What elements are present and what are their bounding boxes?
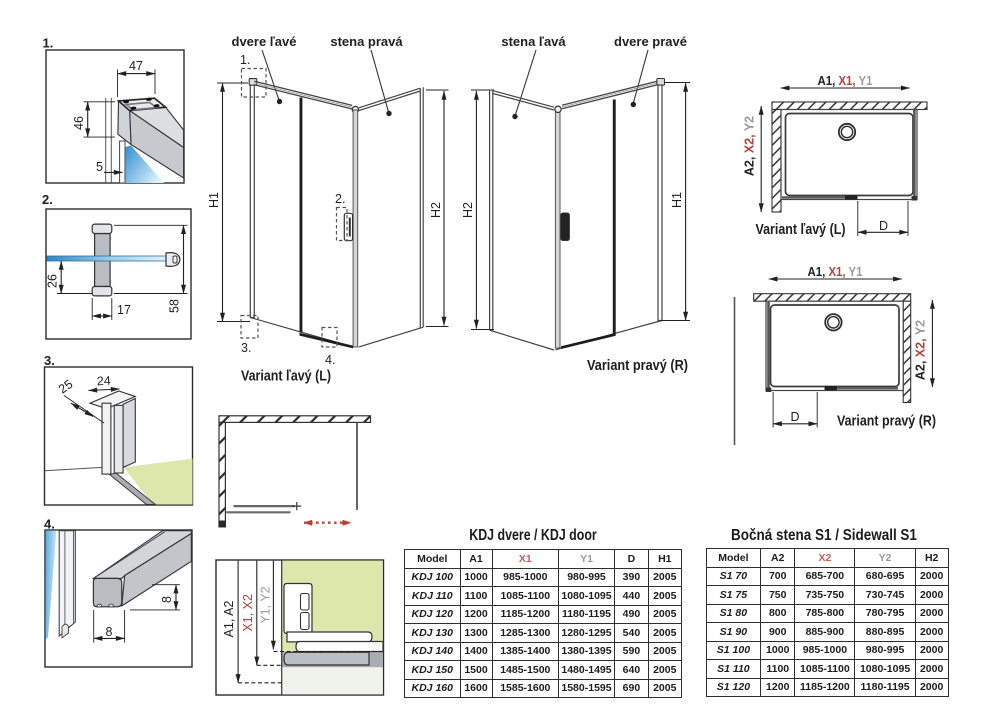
svg-text:Y1, Y2: Y1, Y2 xyxy=(258,586,272,623)
svg-text:dvere ľavé: dvere ľavé xyxy=(232,34,297,49)
svg-text:26: 26 xyxy=(46,274,60,288)
svg-text:Variant pravý (R): Variant pravý (R) xyxy=(587,357,688,374)
svg-text:X1, X2: X1, X2 xyxy=(241,594,255,632)
svg-text:H2: H2 xyxy=(461,202,475,218)
svg-text:A1, X1, Y1: A1, X1, Y1 xyxy=(818,74,873,88)
svg-text:47: 47 xyxy=(129,59,143,73)
svg-text:A1, X1, Y1: A1, X1, Y1 xyxy=(808,265,863,279)
svg-text:4.: 4. xyxy=(325,353,335,367)
svg-text:D: D xyxy=(790,410,799,424)
svg-text:17: 17 xyxy=(117,303,131,317)
svg-text:D: D xyxy=(879,219,888,233)
svg-text:dvere pravé: dvere pravé xyxy=(614,34,687,49)
svg-text:58: 58 xyxy=(168,299,182,313)
svg-text:stena ľavá: stena ľavá xyxy=(501,34,566,49)
svg-text:Variant ľavý (L): Variant ľavý (L) xyxy=(241,368,331,385)
svg-text:24: 24 xyxy=(96,374,111,389)
svg-text:A2, X2, Y2: A2, X2, Y2 xyxy=(914,320,928,380)
svg-text:H1: H1 xyxy=(207,192,221,208)
svg-text:A2, X2, Y2: A2, X2, Y2 xyxy=(743,116,757,176)
svg-text:2.: 2. xyxy=(335,192,345,206)
svg-text:2.: 2. xyxy=(42,192,53,207)
svg-text:1.: 1. xyxy=(240,53,250,67)
svg-text:1.: 1. xyxy=(43,36,54,51)
svg-text:8: 8 xyxy=(160,596,174,603)
svg-text:A1, A2: A1, A2 xyxy=(222,601,236,638)
svg-text:4.: 4. xyxy=(44,517,55,532)
svg-text:H2: H2 xyxy=(429,202,443,218)
svg-text:Variant pravý (R): Variant pravý (R) xyxy=(837,413,936,430)
svg-text:3.: 3. xyxy=(241,341,251,355)
svg-text:3.: 3. xyxy=(44,353,55,368)
svg-text:5: 5 xyxy=(96,160,103,174)
svg-text:8: 8 xyxy=(106,625,113,639)
svg-text:H1: H1 xyxy=(670,192,684,208)
svg-text:Variant ľavý (L): Variant ľavý (L) xyxy=(756,221,846,238)
svg-text:46: 46 xyxy=(72,116,86,130)
svg-text:stena pravá: stena pravá xyxy=(330,34,403,49)
